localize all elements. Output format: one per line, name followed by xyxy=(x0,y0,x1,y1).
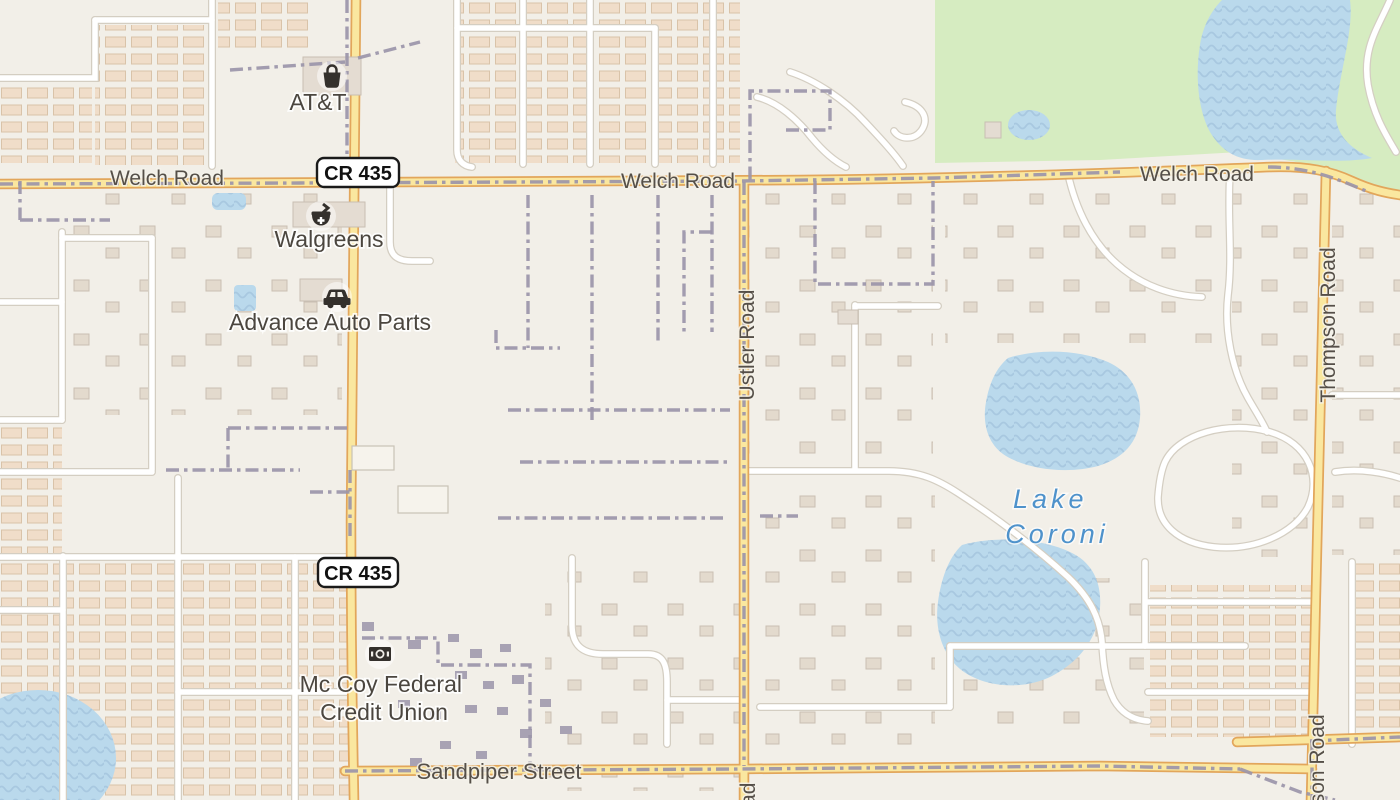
shopping-bag-icon xyxy=(317,61,347,91)
poi-label-line1: Mc Coy Federal xyxy=(300,671,462,697)
svg-text:CR 435: CR 435 xyxy=(324,563,392,585)
car-icon xyxy=(322,282,352,312)
bank-icon xyxy=(365,639,395,669)
road-label-thompson-south: Thompson Road xyxy=(1306,714,1329,800)
small-pool xyxy=(234,285,256,311)
road-label-welch-west: Welch Road xyxy=(110,167,224,190)
poi-label: Walgreens xyxy=(274,226,383,252)
road-label-sandpiper: Sandpiper Street xyxy=(416,759,581,784)
water-label-line1: Lake xyxy=(1013,484,1088,514)
route-shield: CR 435 xyxy=(318,558,398,587)
water-label-line2: Coroni xyxy=(1005,519,1109,549)
road-label-ustler-south: Ustler Road xyxy=(737,783,760,800)
svg-text:CR 435: CR 435 xyxy=(324,163,392,185)
small-pond xyxy=(212,193,246,210)
road-label-ustler: Ustler Road xyxy=(736,290,759,401)
route-shield: CR 435 xyxy=(317,158,399,187)
road-label-welch-east: Welch Road xyxy=(1140,163,1254,186)
poi-label-line2: Credit Union xyxy=(320,699,448,725)
map-viewport[interactable]: Welch Road Welch Road Welch Road Ustler … xyxy=(0,0,1400,800)
poi-label: AT&T xyxy=(289,89,346,115)
map-canvas[interactable]: Welch Road Welch Road Welch Road Ustler … xyxy=(0,0,1400,800)
road-label-thompson: Thompson Road xyxy=(1317,247,1340,402)
road-label-welch-center: Welch Road xyxy=(621,170,735,193)
park-pond xyxy=(1008,110,1050,140)
lake-coroni-upper xyxy=(985,352,1140,470)
poi-label: Advance Auto Parts xyxy=(229,309,431,335)
